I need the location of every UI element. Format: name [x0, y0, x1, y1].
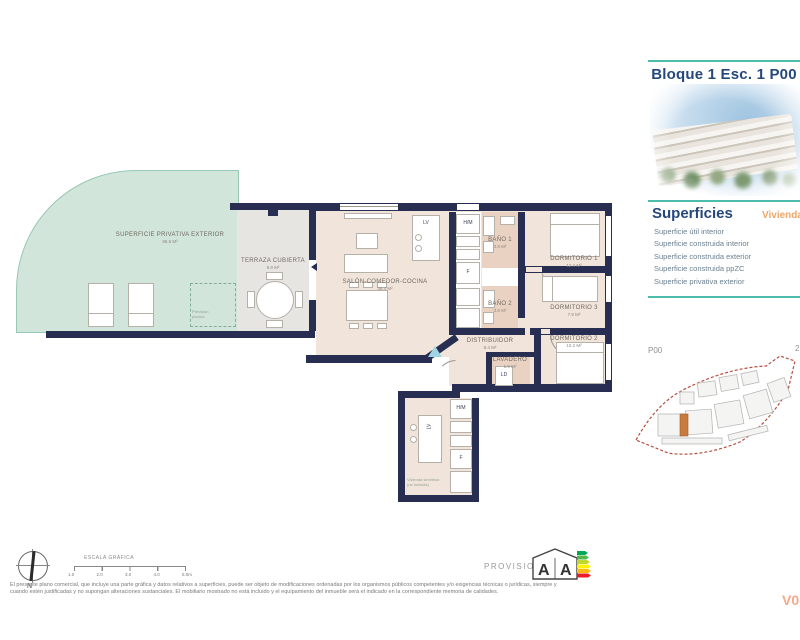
- appliance-label-hm: H/M: [450, 406, 472, 411]
- sink: [410, 424, 417, 431]
- closet: [456, 288, 480, 306]
- pool-provision-area: [190, 283, 236, 327]
- room-label-lavadero: LAVADERO 1.9 m²: [486, 357, 534, 370]
- sliding-door-marker: [311, 263, 317, 271]
- appliance-box: [450, 421, 472, 433]
- vent-gap: [457, 204, 479, 210]
- appliance-box: [456, 249, 480, 260]
- window: [340, 204, 398, 210]
- shower: [483, 216, 495, 236]
- room-label-salon: SALÓN-COMEDOR-COCINA 38.4 m²: [330, 279, 440, 292]
- room-label-dorm3: DORMITORIO 3 7.9 m²: [538, 305, 610, 318]
- sink: [415, 234, 422, 241]
- chair: [349, 323, 359, 329]
- energy-letter: A: [538, 562, 550, 579]
- bed-pillow-line: [550, 224, 600, 225]
- washbasin: [500, 216, 515, 225]
- appliance-label-ld: LD: [495, 373, 513, 378]
- room-area: 96.6 m²: [100, 239, 240, 245]
- room-label-dorm2: DORMITORIO 2 10.2 m²: [538, 336, 610, 349]
- room-label-bano2: BAÑO 2 3.6 m²: [478, 301, 522, 314]
- wall: [398, 391, 460, 398]
- scale-bar: [74, 566, 186, 571]
- plan-sheet: { "colors": { "wall_navy": "#272e52", "a…: [0, 0, 800, 640]
- wall: [398, 391, 405, 501]
- wall-pillar: [268, 203, 278, 216]
- shaft-between-banos: [482, 268, 518, 286]
- superficie-item: Superficie construida interior: [654, 238, 751, 250]
- superficie-item: Superficie útil interior: [654, 226, 751, 238]
- room-label-bano1: BAÑO 1 3.9 m²: [478, 237, 522, 250]
- round-table: [256, 281, 294, 319]
- chair: [295, 291, 303, 308]
- appliance-label-lv: LV: [428, 420, 433, 434]
- bed: [550, 213, 600, 257]
- wall: [309, 210, 316, 260]
- energy-arrows: [577, 551, 591, 578]
- room-name: SUPERFICIE PRIVATIVA EXTERIOR: [100, 232, 240, 238]
- dining-table: [346, 290, 388, 321]
- wall: [306, 355, 432, 363]
- pool-provision-note: Previsión piscina: [192, 310, 208, 319]
- render-vignette: [650, 84, 800, 196]
- appliance-label-hm: H/M: [456, 221, 480, 226]
- scale-ticks: 1.0 2.0 3.0 4.0 5.0m: [68, 572, 192, 577]
- sink: [415, 245, 422, 252]
- energy-rating-icon: A A: [530, 546, 592, 582]
- window: [606, 276, 611, 302]
- sun-lounger-line: [88, 313, 114, 314]
- bed: [542, 276, 598, 302]
- window: [606, 216, 611, 256]
- entrance-marker: [428, 346, 442, 357]
- sun-lounger: [128, 283, 154, 327]
- closet: [450, 471, 472, 493]
- highlighted-unit: [680, 414, 688, 436]
- cabinet: [356, 233, 378, 249]
- divider-siteplan: [648, 296, 800, 298]
- site-plan-map: [628, 352, 800, 470]
- disclaimer-text: El presente plano comercial, que incluye…: [10, 582, 557, 595]
- appliance-box: [450, 435, 472, 447]
- door-arc: [436, 360, 456, 380]
- window: [606, 344, 611, 380]
- adjacent-unit-note: Vivienda simétrica (no incluida): [407, 478, 439, 487]
- appliance-box: [456, 236, 480, 247]
- bed-pillow-line: [552, 276, 553, 302]
- chair: [377, 323, 387, 329]
- chair: [266, 272, 283, 280]
- wall: [452, 384, 612, 392]
- superficie-item: Superficie privativa exterior: [654, 276, 751, 288]
- window-line: [340, 206, 398, 207]
- vivienda-label: Vivienda: [762, 210, 800, 221]
- appliance-label-lv: LV: [419, 221, 433, 226]
- wall: [398, 495, 479, 502]
- appliance-label-f: F: [450, 456, 472, 461]
- bed-pillow-line: [556, 352, 604, 353]
- sun-lounger-line: [128, 313, 154, 314]
- superficies-list: Superficie útil interior Superficie cons…: [654, 226, 751, 288]
- chair: [266, 320, 283, 328]
- building-render-image: [650, 84, 800, 196]
- room-label-terraza: TERRAZA CUBIERTA 9.9 m²: [237, 258, 309, 271]
- superficie-item: Superficie construida ppZC: [654, 263, 751, 275]
- sink: [410, 436, 417, 443]
- chair: [363, 323, 373, 329]
- wall: [309, 300, 316, 331]
- north-compass-icon: [16, 549, 50, 583]
- chair: [247, 291, 255, 308]
- room-label-distribuidor: DISTRIBUIDOR 8.4 m²: [452, 338, 528, 351]
- scale-label: ESCALA GRÁFICA: [84, 555, 134, 561]
- sun-lounger: [88, 283, 114, 327]
- closet: [456, 308, 480, 328]
- wall: [46, 331, 315, 338]
- divider-top: [648, 60, 800, 62]
- wall: [472, 398, 479, 501]
- energy-letter: A: [560, 562, 572, 579]
- wall: [449, 328, 525, 335]
- wall: [449, 212, 456, 330]
- version-label: V0: [782, 592, 799, 608]
- kitchen-island: [344, 254, 388, 273]
- room-label-exterior: SUPERFICIE PRIVATIVA EXTERIOR 96.6 m²: [100, 232, 240, 245]
- appliance-label-f: F: [456, 270, 480, 275]
- window-sill: [344, 213, 392, 219]
- superficie-item: Superficie construida exterior: [654, 251, 751, 263]
- divider-superficies: [648, 200, 800, 202]
- room-label-dorm1: DORMITORIO 1 12.4 m²: [538, 256, 610, 269]
- superficies-heading: Superficies: [652, 205, 733, 222]
